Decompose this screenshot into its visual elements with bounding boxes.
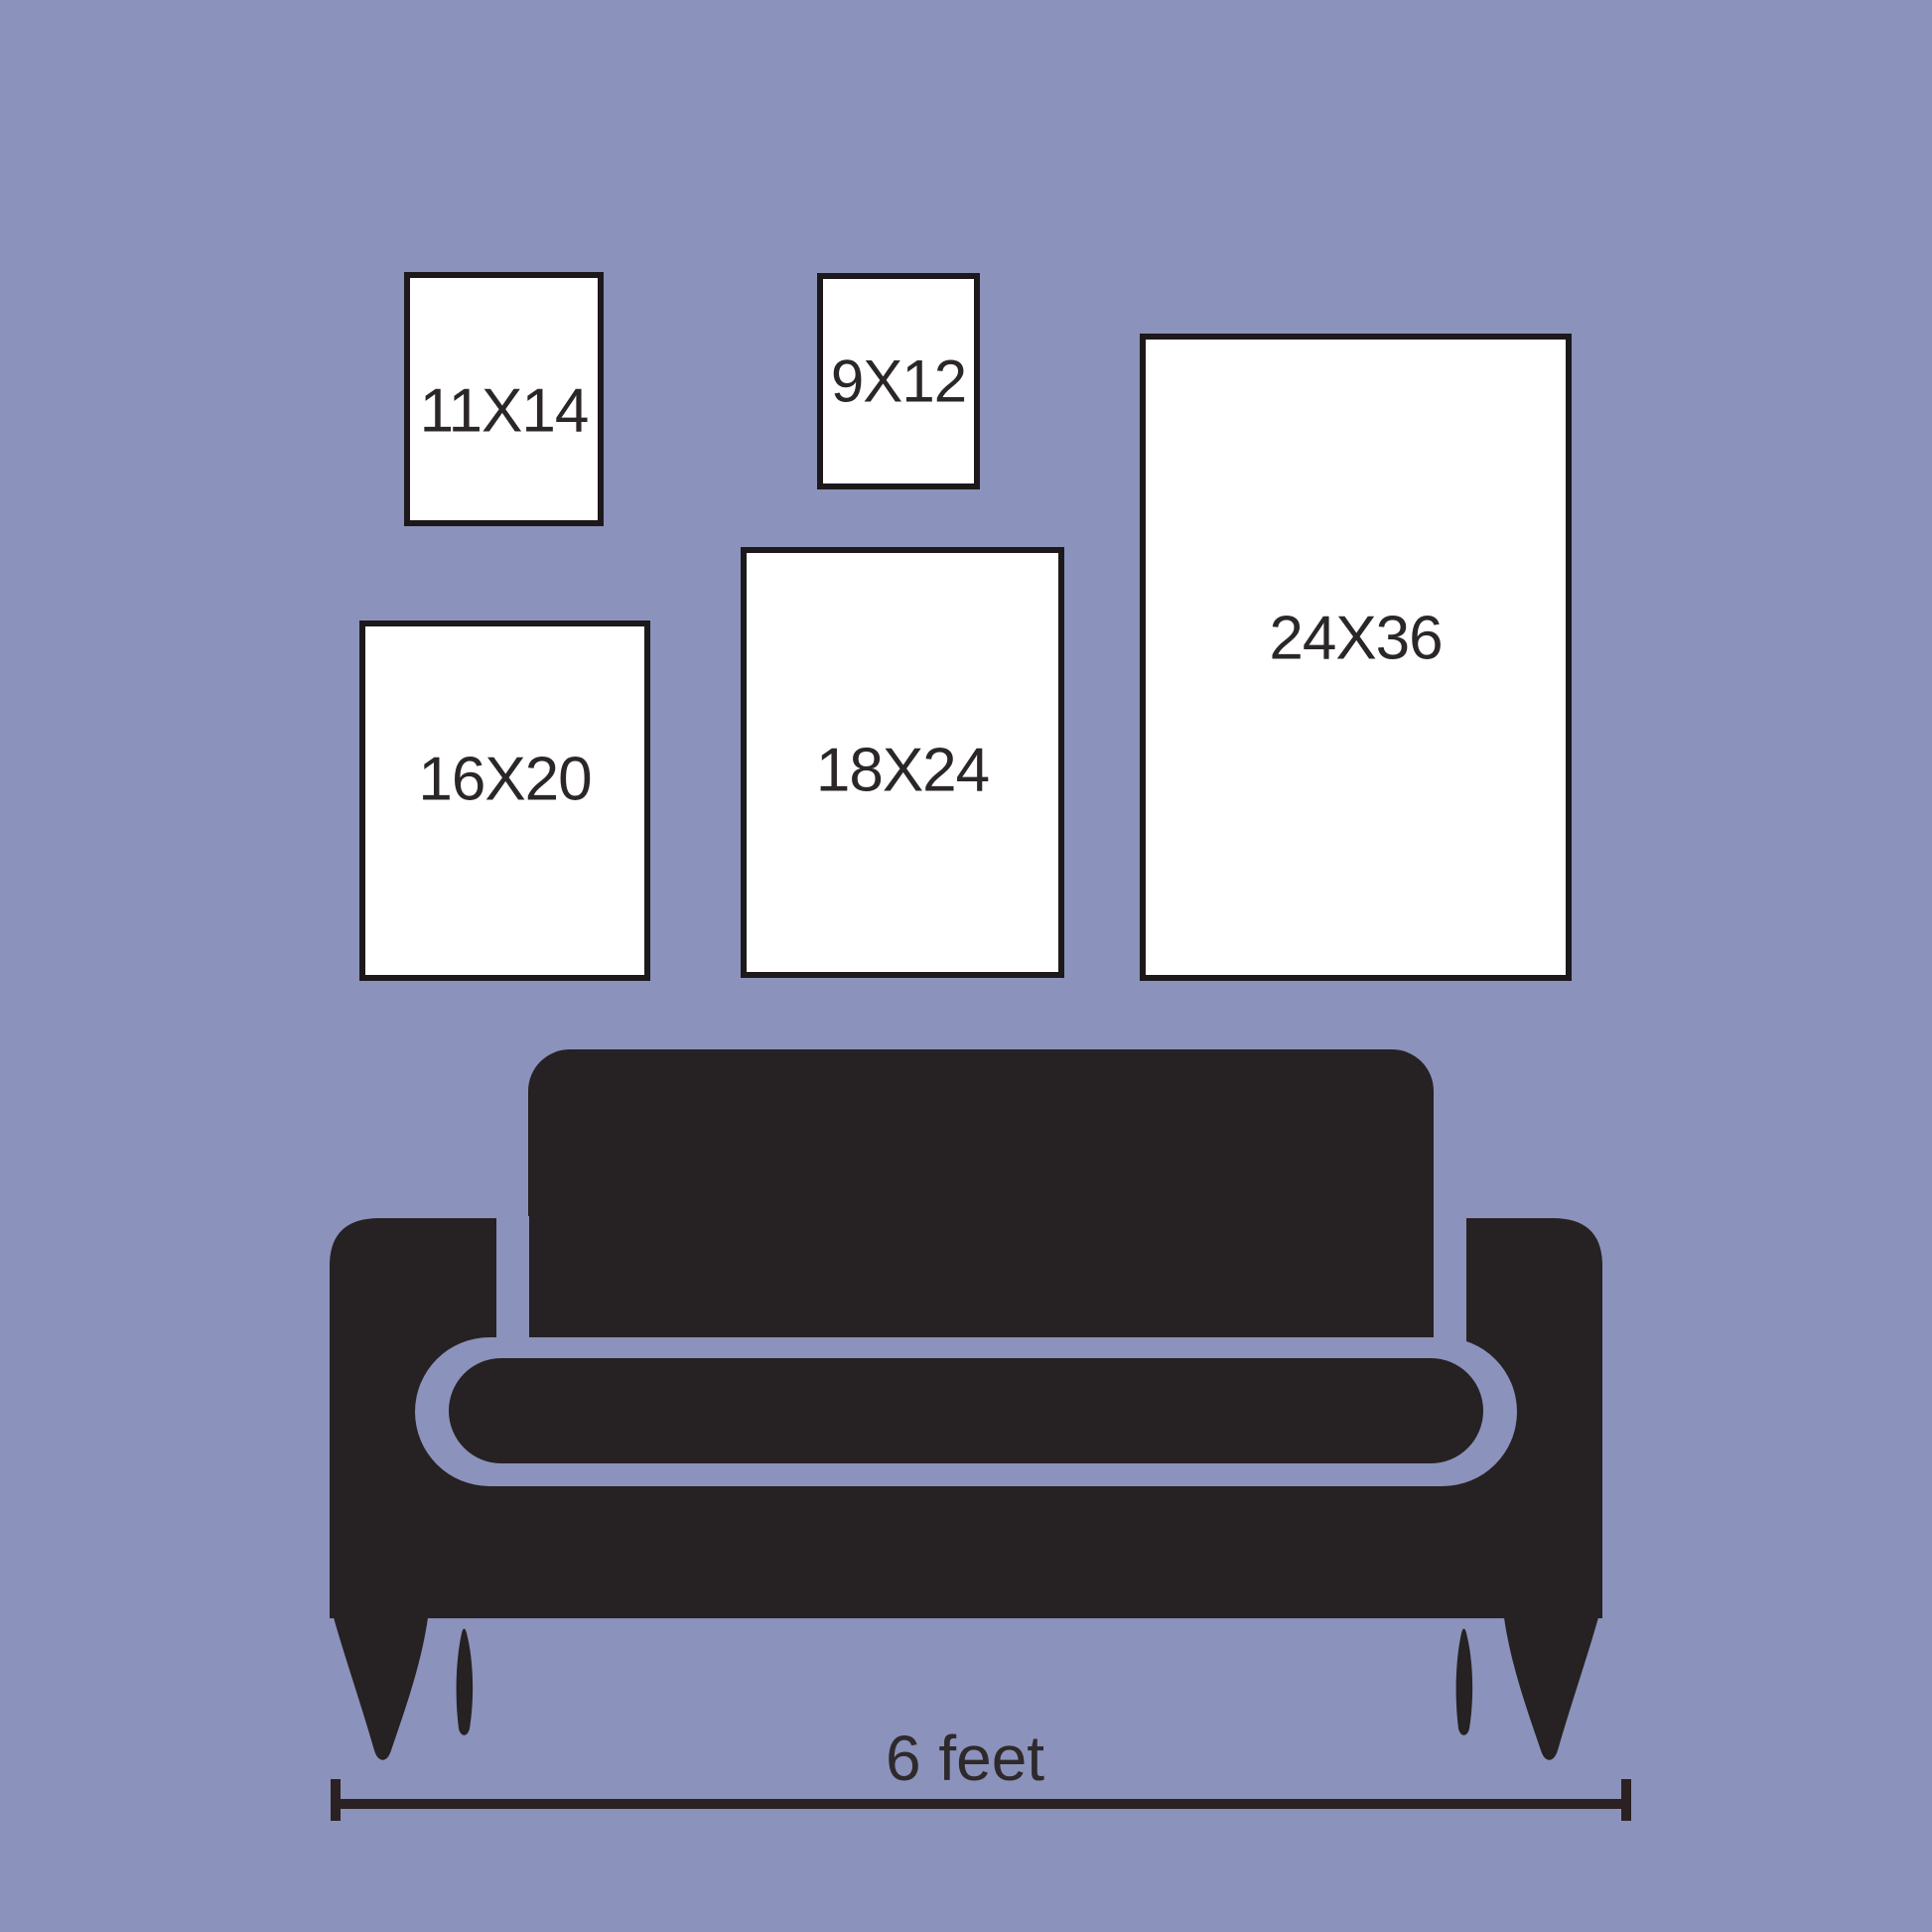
sofa-seat-cushion: [449, 1358, 1483, 1463]
measurement-line: [331, 1799, 1631, 1809]
sofa-icon: [0, 0, 1932, 1932]
measurement-endcap-right: [1621, 1779, 1631, 1821]
sofa-leg-outer-left: [332, 1610, 429, 1760]
measurement-label: 6 feet: [886, 1722, 1044, 1795]
sofa-leg-outer-right: [1503, 1610, 1600, 1760]
sofa-leg-inner-left: [457, 1629, 474, 1735]
sofa-gap-right: [1434, 1216, 1466, 1341]
sofa-gap-left: [496, 1216, 529, 1341]
measurement-endcap-left: [331, 1779, 341, 1821]
sofa-leg-inner-right: [1456, 1629, 1473, 1735]
wall-background: 11X14 9X12 24X36 16X20 18X24: [0, 0, 1932, 1932]
